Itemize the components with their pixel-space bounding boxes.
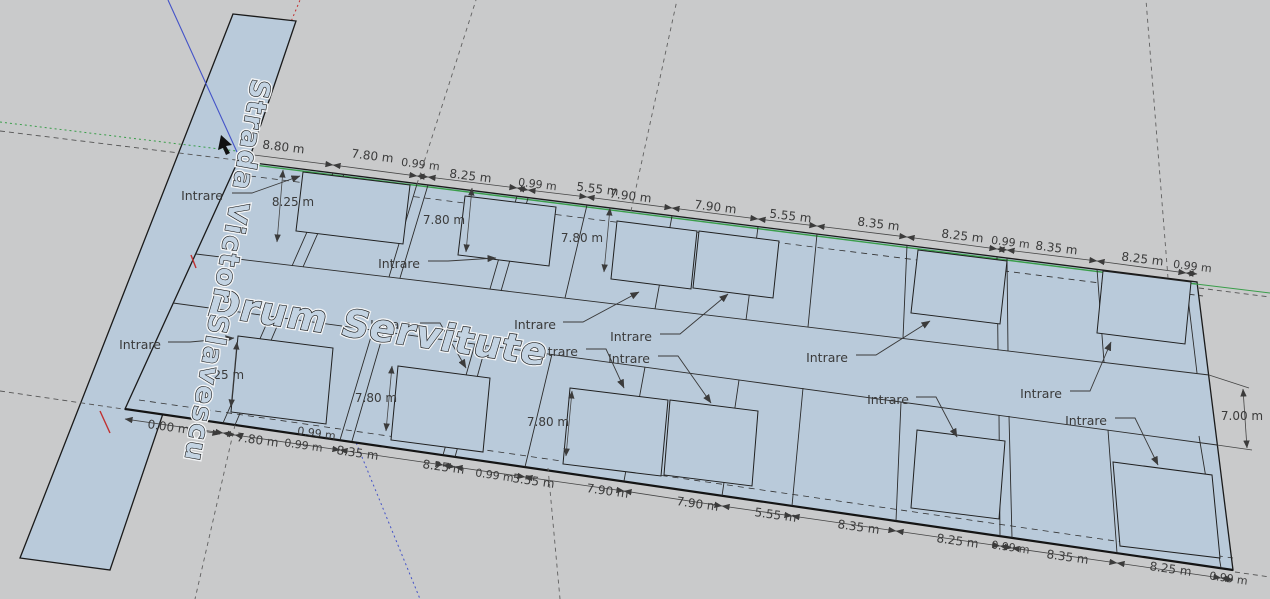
entrance-label: Intrare [378, 256, 420, 271]
entrance-label: Intrare [181, 188, 223, 203]
house-footprint[interactable] [563, 388, 668, 476]
dim-label: 7.80 m [423, 213, 465, 227]
entrance-label: Intrare [610, 329, 652, 344]
entrance-label: Intrare [867, 392, 909, 407]
house-footprint[interactable] [611, 221, 697, 289]
house-footprint[interactable] [1113, 462, 1220, 558]
entrance-label: Intrare [608, 351, 650, 366]
dim-label: 7.80 m [355, 391, 397, 405]
house-footprint[interactable] [911, 250, 1007, 324]
sketchup-viewport: 8.80 m 7.80 m 0.99 m 8.25 m 0.99 m 5.55 … [0, 0, 1270, 599]
house-footprint[interactable] [693, 231, 779, 298]
entrance-label: Intrare [1065, 413, 1107, 428]
entrance-label: Intrare [806, 350, 848, 365]
house-footprint[interactable] [231, 336, 333, 424]
dim-label: 7.80 m [561, 231, 603, 245]
house-footprint[interactable] [391, 366, 490, 452]
house-footprint[interactable] [458, 196, 556, 266]
dim-label: 7.80 m [527, 415, 569, 429]
house-footprint[interactable] [911, 430, 1005, 519]
dim-label: 8.25 m [272, 195, 314, 209]
entrance-label: Intrare [1020, 386, 1062, 401]
entrance-label: Intrare [119, 337, 161, 352]
house-footprint[interactable] [1097, 271, 1191, 344]
dim-label: 7.00 m [1221, 409, 1263, 423]
house-footprint[interactable] [664, 400, 758, 486]
